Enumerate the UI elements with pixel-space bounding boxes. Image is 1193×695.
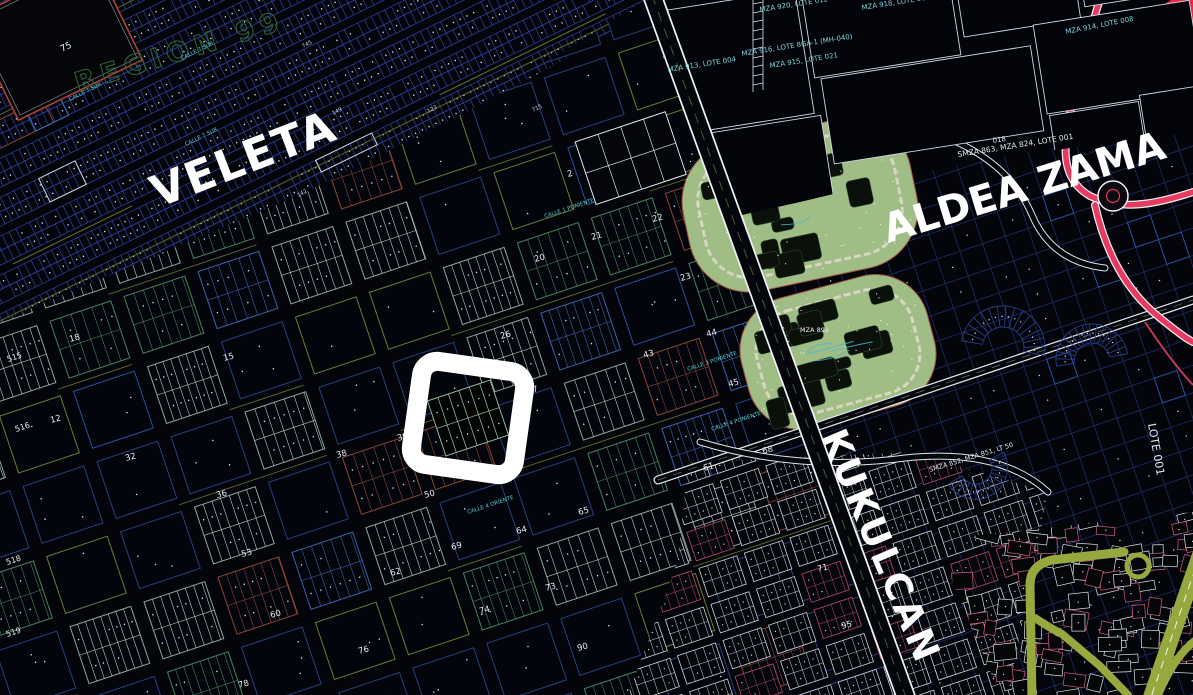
cad-map-viewport: REGION 99VELETAALDEA ZAMAKUKULCANSMZA 86… [0,0,1193,695]
cad-map-canvas[interactable]: REGION 99VELETAALDEA ZAMAKUKULCANSMZA 86… [0,0,1193,695]
lot-label-10: MZA 891 [800,326,829,334]
